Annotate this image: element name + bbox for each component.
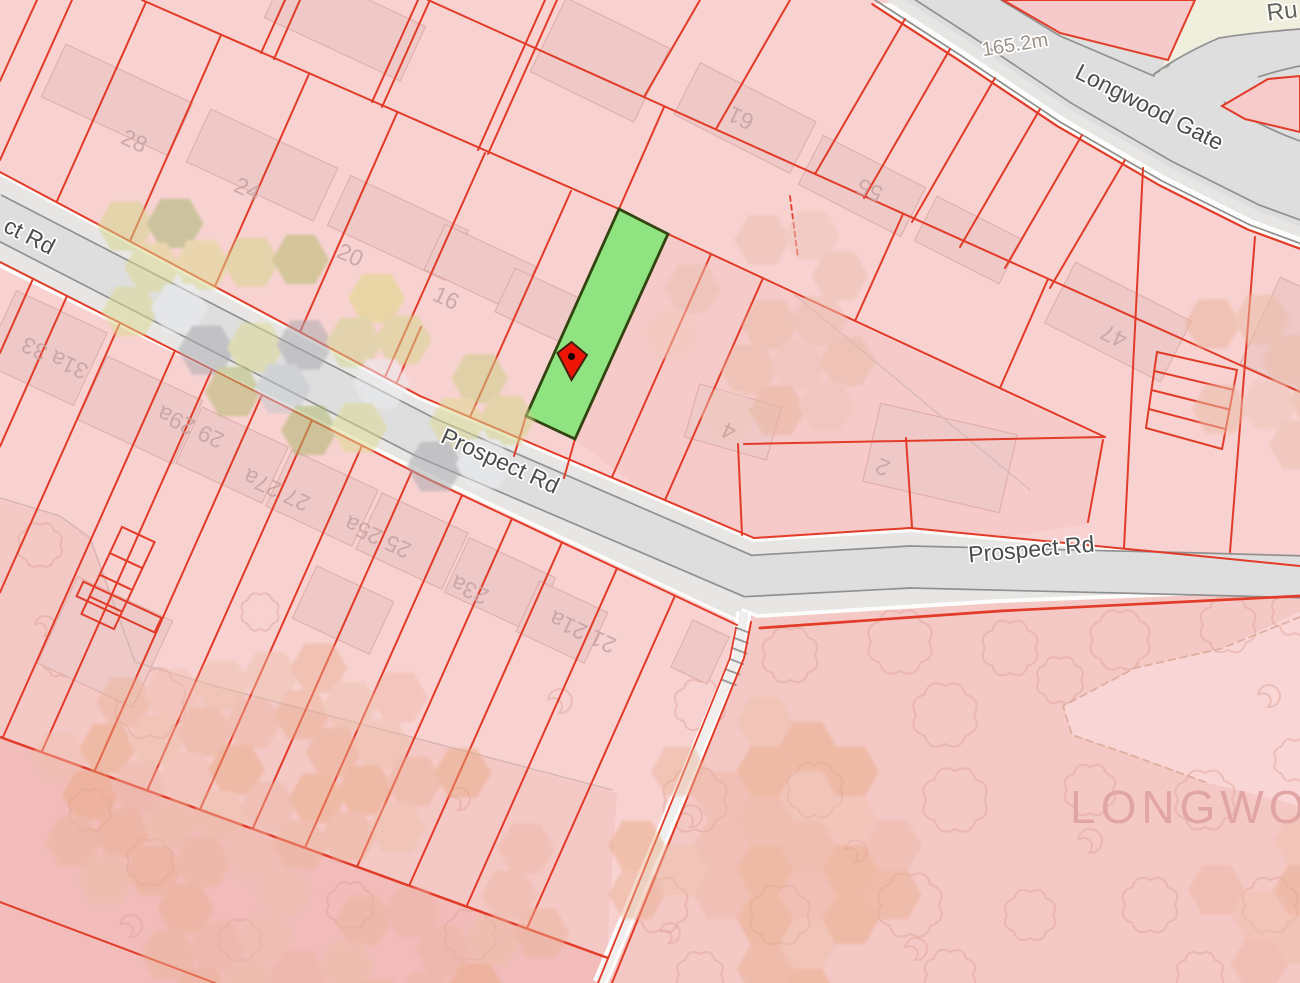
svg-text:Ru: Ru [1265,0,1299,27]
svg-text:LONGWOOD: LONGWOOD [1070,781,1300,833]
